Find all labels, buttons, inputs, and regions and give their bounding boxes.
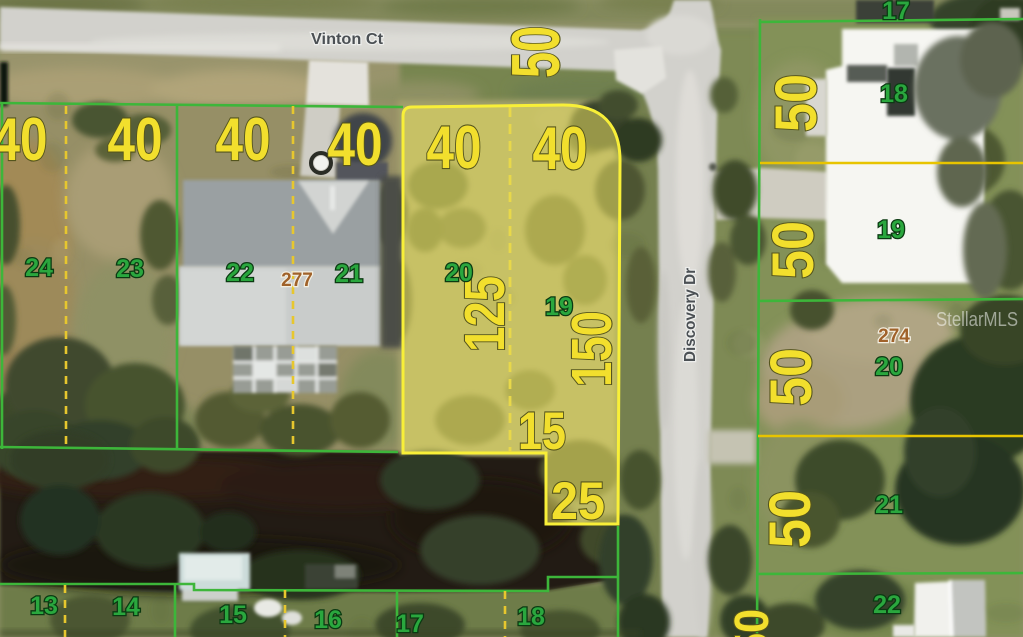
- svg-text:50: 50: [759, 348, 824, 406]
- svg-text:20: 20: [875, 353, 903, 381]
- svg-text:274: 274: [878, 326, 910, 347]
- svg-text:22: 22: [226, 259, 254, 287]
- svg-text:13: 13: [30, 592, 58, 620]
- svg-text:15: 15: [219, 601, 247, 629]
- svg-text:277: 277: [281, 270, 313, 291]
- svg-text:17: 17: [882, 0, 910, 25]
- svg-text:23: 23: [116, 255, 144, 283]
- svg-text:StellarMLS: StellarMLS: [936, 309, 1018, 331]
- svg-text:20: 20: [445, 259, 473, 287]
- svg-text:40: 40: [108, 106, 163, 173]
- svg-text:21: 21: [335, 260, 363, 288]
- svg-text:14: 14: [112, 593, 140, 621]
- svg-text:22: 22: [873, 591, 901, 619]
- svg-text:24: 24: [25, 254, 53, 282]
- svg-text:17: 17: [396, 610, 424, 637]
- svg-text:50: 50: [758, 490, 823, 548]
- svg-text:40: 40: [328, 111, 383, 178]
- svg-text:16: 16: [314, 606, 342, 634]
- svg-text:15: 15: [518, 402, 566, 461]
- svg-text:40: 40: [427, 114, 482, 181]
- svg-text:40: 40: [0, 106, 48, 173]
- svg-text:50: 50: [726, 609, 779, 637]
- svg-text:50: 50: [764, 74, 829, 132]
- svg-text:25: 25: [551, 472, 605, 531]
- svg-text:18: 18: [880, 80, 908, 108]
- svg-text:40: 40: [533, 115, 588, 182]
- svg-text:19: 19: [877, 216, 905, 244]
- svg-text:21: 21: [875, 491, 903, 519]
- svg-text:Vinton Ct: Vinton Ct: [311, 31, 384, 48]
- svg-text:50: 50: [761, 221, 826, 279]
- svg-text:19: 19: [545, 293, 573, 321]
- svg-text:18: 18: [517, 603, 545, 631]
- svg-text:125: 125: [453, 276, 517, 352]
- svg-text:Discovery Dr: Discovery Dr: [682, 268, 699, 362]
- svg-text:150: 150: [560, 311, 624, 387]
- svg-text:50: 50: [498, 26, 574, 78]
- svg-text:40: 40: [216, 106, 271, 173]
